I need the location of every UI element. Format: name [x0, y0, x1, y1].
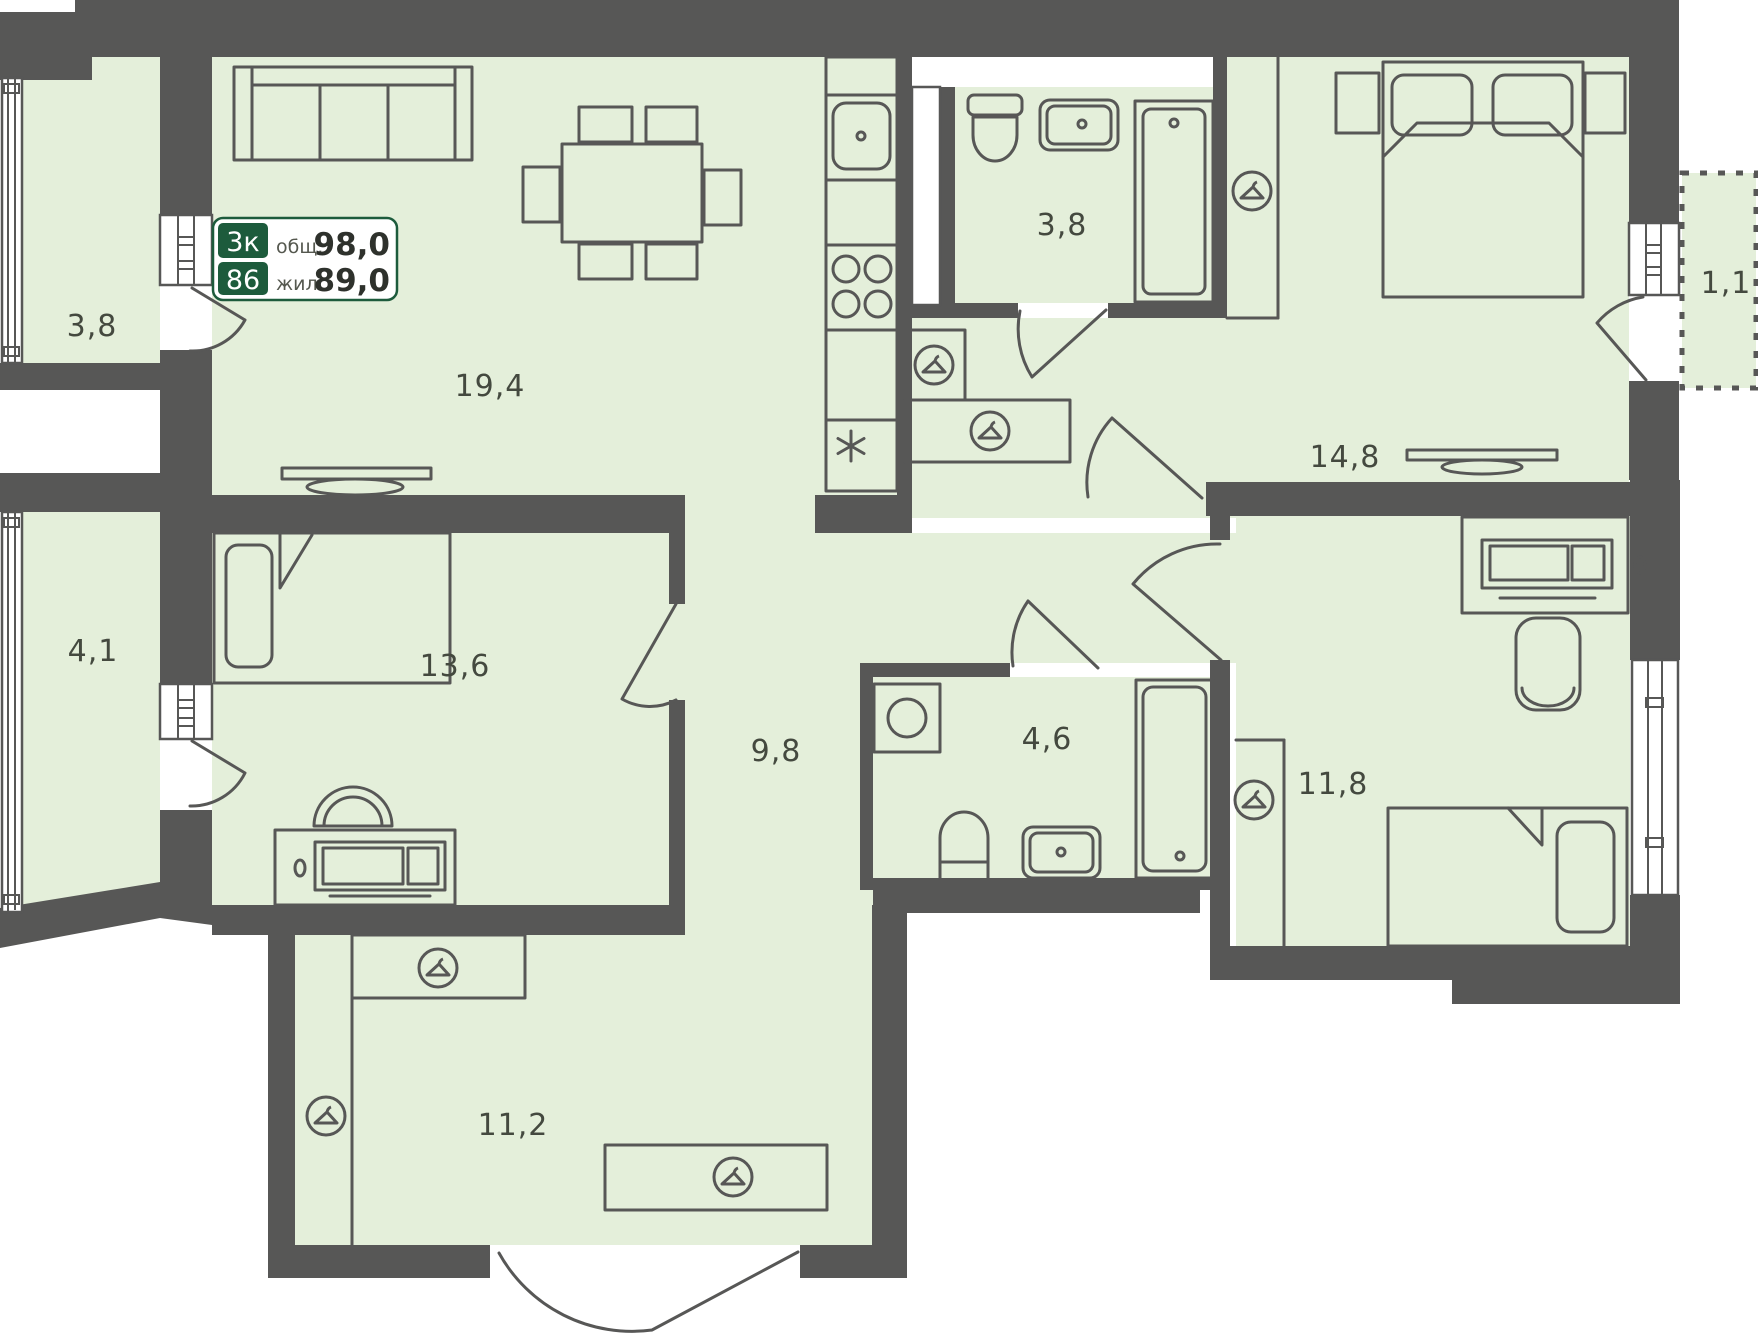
wall [0, 12, 92, 80]
wall [0, 473, 212, 512]
wall [873, 878, 1210, 890]
badge-total-value: 98,0 [314, 227, 391, 263]
wall [1206, 482, 1680, 516]
balcony-door-unit-top-left [160, 215, 212, 285]
wall [955, 303, 1018, 318]
room-area-label: 11,2 [478, 1108, 549, 1143]
floor-hallway [685, 533, 1236, 663]
badge-apartment-number: 86 [226, 265, 260, 296]
wall [669, 533, 685, 604]
dining-table [562, 144, 702, 242]
kitchen-unit [826, 57, 897, 491]
room-area-label: 3,8 [1037, 208, 1088, 243]
badge-living-value: 89,0 [314, 263, 391, 299]
wall [912, 305, 955, 318]
wall [1210, 516, 1230, 540]
wall [75, 0, 1679, 57]
apartment-info-badge: 3к 86 общ. 98,0 жил. 89,0 [213, 218, 397, 300]
room-area-label: 11,8 [1298, 767, 1369, 802]
door-entry [499, 1252, 798, 1331]
floor-corridor [295, 935, 872, 1245]
room-area-label: 14,8 [1310, 440, 1381, 475]
window-balcony-left [2, 512, 22, 912]
balcony-door-unit-left [160, 684, 212, 739]
wall [872, 905, 907, 1278]
floor-passage [685, 495, 815, 533]
wall [873, 890, 1200, 913]
wall [1452, 946, 1680, 1004]
wall [1629, 381, 1679, 480]
wall [800, 1245, 907, 1278]
room-area-label: 4,1 [68, 634, 119, 669]
badge-rooms-count: 3к [226, 227, 260, 258]
wall [268, 920, 295, 1278]
wall [160, 57, 212, 215]
wall [860, 663, 873, 890]
floor-balcony-left [22, 512, 160, 912]
wall [212, 495, 685, 533]
floor-bedroom-master [1227, 57, 1629, 482]
wall [0, 363, 212, 390]
room-area-label: 9,8 [751, 734, 802, 769]
wall [1213, 57, 1227, 318]
wall [1210, 946, 1452, 980]
floor-plan-page: 3,8 19,4 3,8 14,8 1,1 4,1 13,6 9,8 4,6 1… [0, 0, 1758, 1335]
balcony-door-unit-bedroom [1629, 223, 1679, 295]
room-area-label: 1,1 [1701, 266, 1752, 301]
floor-plan-canvas: 3,8 19,4 3,8 14,8 1,1 4,1 13,6 9,8 4,6 1… [0, 0, 1758, 1335]
room-area-label: 3,8 [67, 309, 118, 344]
wall [1629, 57, 1679, 223]
ventilation-shaft [912, 87, 940, 305]
wall [160, 810, 212, 890]
floor-hallway-lower [685, 663, 873, 935]
window-balcony-top-left [2, 78, 22, 363]
wall [1108, 303, 1213, 318]
room-area-label: 4,6 [1022, 722, 1073, 757]
wall [1630, 895, 1680, 946]
room-area-label: 19,4 [455, 369, 526, 404]
kitchen-counter [826, 57, 897, 491]
wall [669, 700, 685, 905]
wall [160, 512, 212, 684]
wall [940, 87, 955, 318]
wall [268, 1245, 490, 1278]
room-area-label: 13,6 [420, 649, 491, 684]
wall [860, 663, 1010, 677]
window-bedroom-second [1632, 660, 1678, 895]
floor-hall-upper [912, 318, 1236, 518]
